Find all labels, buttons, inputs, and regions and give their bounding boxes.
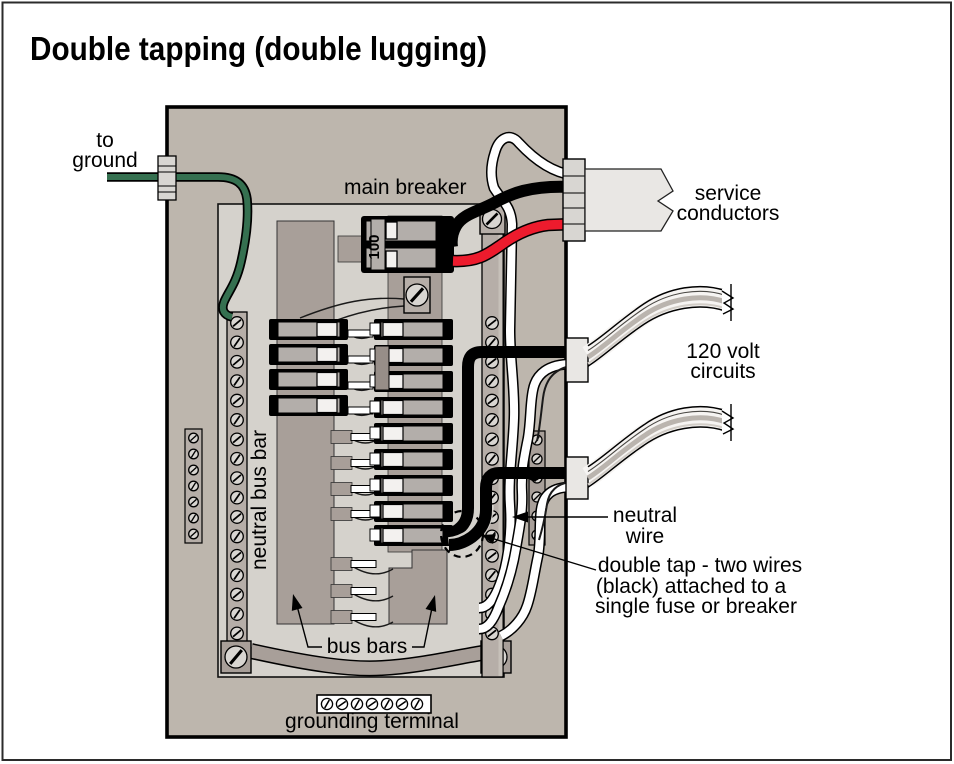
- svg-text:double tap - two wires: double tap - two wires: [598, 554, 802, 577]
- svg-text:100: 100: [366, 234, 383, 259]
- svg-text:conductors: conductors: [677, 202, 780, 225]
- svg-text:single fuse or breaker: single fuse or breaker: [595, 595, 797, 618]
- svg-text:grounding terminal: grounding terminal: [285, 710, 459, 733]
- svg-text:wire: wire: [625, 525, 665, 548]
- svg-text:bus bars: bus bars: [327, 635, 408, 658]
- svg-text:ground: ground: [72, 149, 137, 172]
- svg-text:Double tapping (double lugging: Double tapping (double lugging): [30, 30, 487, 67]
- svg-text:main breaker: main breaker: [344, 176, 467, 199]
- svg-text:neutral: neutral: [613, 504, 677, 527]
- svg-text:neutral bus bar: neutral bus bar: [248, 430, 271, 570]
- svg-text:circuits: circuits: [690, 360, 755, 383]
